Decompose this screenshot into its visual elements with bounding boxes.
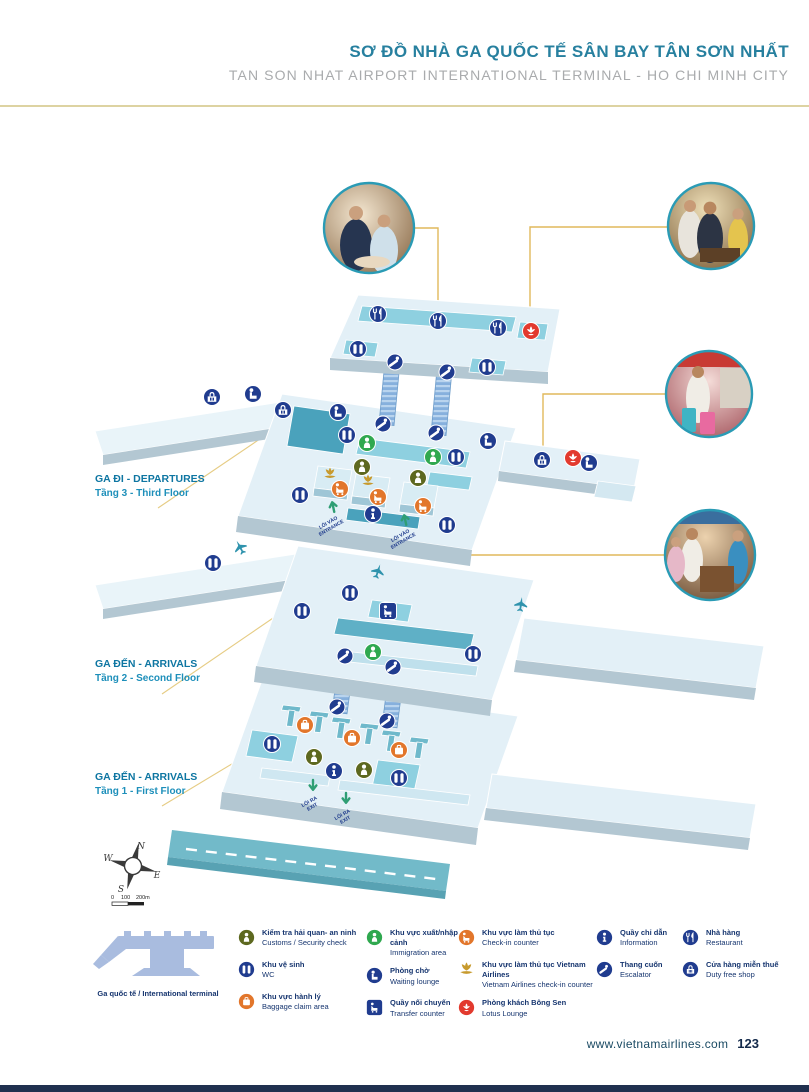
terminal-key-label: Ga quốc tế / International terminal <box>86 989 230 998</box>
checkin-icon <box>332 481 349 498</box>
wc-icon <box>439 517 456 534</box>
dutyfree-icon <box>534 452 551 469</box>
legend-column-4: Quầy chỉ dẫnInformation Thang cuốnEscala… <box>596 928 681 992</box>
brochure-page: SƠ ĐỒ NHÀ GA QUỐC TẾ SÂN BAY TÂN SƠN NHẤ… <box>0 0 809 1092</box>
restaurant-icon <box>370 306 387 323</box>
floor-1-arrivals: LỐI RAEXIT LỐI RAEXIT <box>167 680 756 899</box>
waiting-lounge-icon <box>330 404 347 421</box>
legend-item: Khu vực làm thủ tụcCheck-in counter <box>458 928 596 952</box>
escalator-icon <box>387 354 403 370</box>
legend-item: Quầy chỉ dẫnInformation <box>596 928 681 952</box>
checkin-icon <box>415 498 432 515</box>
compass-e: E <box>153 871 161 881</box>
svg-text:200m: 200m <box>136 895 150 901</box>
page-footer: www.vietnamairlines.com 123 <box>587 1036 759 1051</box>
bottom-bar <box>0 1085 809 1092</box>
wc-icon <box>205 555 222 572</box>
waiting-lounge-icon <box>366 967 383 984</box>
page-number: 123 <box>737 1036 759 1051</box>
wc-icon <box>339 427 356 444</box>
floor-2-arrivals <box>95 538 764 716</box>
escalator-icon <box>439 364 455 380</box>
legend-column-3: Khu vực làm thủ tụcCheck-in counter Khu … <box>458 928 596 1030</box>
legend-item: Nhà hàngRestaurant <box>682 928 792 952</box>
dutyfree-icon <box>275 402 292 419</box>
customs-icon <box>410 470 427 487</box>
photo-buffet <box>324 183 414 274</box>
lotus-lounge-icon <box>523 323 540 340</box>
escalator-icon <box>329 699 345 715</box>
waiting-lounge-icon <box>245 386 262 403</box>
compass-rose: N W E S 0 100 200m <box>103 837 162 905</box>
customs-icon <box>356 762 373 779</box>
legend-item: Phòng khách Bông SenLotus Lounge <box>458 998 596 1022</box>
legend-item: Khu vực xuất/nhập cảnhImmigration area <box>366 928 471 958</box>
legend-column-5: Nhà hàngRestaurant Cửa hàng miễn thuếDut… <box>682 928 792 992</box>
wc-icon <box>292 487 309 504</box>
compass-s: S <box>118 885 124 895</box>
waiting-lounge-icon <box>480 433 497 450</box>
immigration-icon <box>365 644 382 661</box>
photo-lounge-family <box>665 510 755 600</box>
dutyfree-icon <box>204 389 221 406</box>
floor-label-arrivals-2: GA ĐẾN - ARRIVALSTầng 2 - Second Floor <box>95 657 200 686</box>
legend-item: Cửa hàng miễn thuếDuty free shop <box>682 960 792 984</box>
information-icon <box>596 929 613 946</box>
svg-text:0: 0 <box>111 895 114 901</box>
lotus-lounge-icon <box>458 999 475 1016</box>
baggage-icon <box>391 742 408 759</box>
wc-icon <box>264 736 281 753</box>
wc-icon <box>350 341 367 358</box>
legend-item: Quầy nối chuyếnTransfer counter <box>366 998 471 1022</box>
escalator-icon <box>379 713 395 729</box>
wc-icon <box>294 603 311 620</box>
escalator-icon <box>385 659 401 675</box>
wc-icon <box>448 449 465 466</box>
baggage-icon <box>344 730 361 747</box>
floor-label-departures: GA ĐI - DEPARTURESTầng 3 - Third Floor <box>95 472 205 501</box>
wc-icon <box>391 770 408 787</box>
baggage-icon <box>297 717 314 734</box>
restaurant-icon <box>430 313 447 330</box>
checkin-icon <box>370 489 387 506</box>
escalator-icon <box>596 961 613 978</box>
compass-n: N <box>136 842 146 852</box>
svg-text:100: 100 <box>121 895 130 901</box>
airplane-icon <box>231 538 249 557</box>
immigration-icon <box>366 929 383 946</box>
vna-checkin-icon <box>458 961 475 978</box>
website-link[interactable]: www.vietnamairlines.com <box>587 1037 729 1051</box>
information-icon <box>326 763 343 780</box>
immigration-icon <box>425 449 442 466</box>
legend-item: Khu vực làm thủ tục Vietnam AirlinesViet… <box>458 960 596 990</box>
transfer-icon <box>366 999 383 1016</box>
lotus-lounge-icon <box>565 450 582 467</box>
customs-icon <box>238 929 255 946</box>
legend-item: Khu vệ sinhWC <box>238 960 360 984</box>
escalator-icon <box>428 425 444 441</box>
photo-dutyfree-shop <box>666 351 754 437</box>
photo-checkin-counter <box>668 183 754 269</box>
legend-column-1: Kiểm tra hải quan- an ninhCustoms / Secu… <box>238 928 360 1024</box>
dutyfree-icon <box>682 961 699 978</box>
restaurant-icon <box>490 320 507 337</box>
wc-icon <box>479 359 496 376</box>
scale-bar: 0 100 200m <box>111 895 150 905</box>
information-icon <box>365 506 382 523</box>
legend-item: Phòng chờWaiting lounge <box>366 966 471 990</box>
legend-item: Thang cuốnEscalator <box>596 960 681 984</box>
waiting-lounge-icon <box>581 455 598 472</box>
restaurant-icon <box>682 929 699 946</box>
immigration-icon <box>359 435 376 452</box>
baggage-icon <box>238 993 255 1010</box>
legend-item: Kiểm tra hải quan- an ninhCustoms / Secu… <box>238 928 360 952</box>
escalator-icon <box>337 648 353 664</box>
escalator-icon <box>375 416 391 432</box>
checkin-icon <box>458 929 475 946</box>
wc-icon <box>238 961 255 978</box>
terminal-silhouette <box>86 918 230 980</box>
floor-label-arrivals-1: GA ĐẾN - ARRIVALSTầng 1 - First Floor <box>95 770 197 799</box>
legend-column-2: Khu vực xuất/nhập cảnhImmigration area P… <box>366 928 471 1030</box>
terminal-key: Ga quốc tế / International terminal <box>86 918 230 998</box>
wc-icon <box>342 585 359 602</box>
compass-w: W <box>103 854 113 864</box>
customs-icon <box>306 749 323 766</box>
customs-icon <box>354 459 371 476</box>
wc-icon <box>465 646 482 663</box>
legend-item: Khu vực hành lýBaggage claim area <box>238 992 360 1016</box>
transfer-icon <box>380 603 397 620</box>
